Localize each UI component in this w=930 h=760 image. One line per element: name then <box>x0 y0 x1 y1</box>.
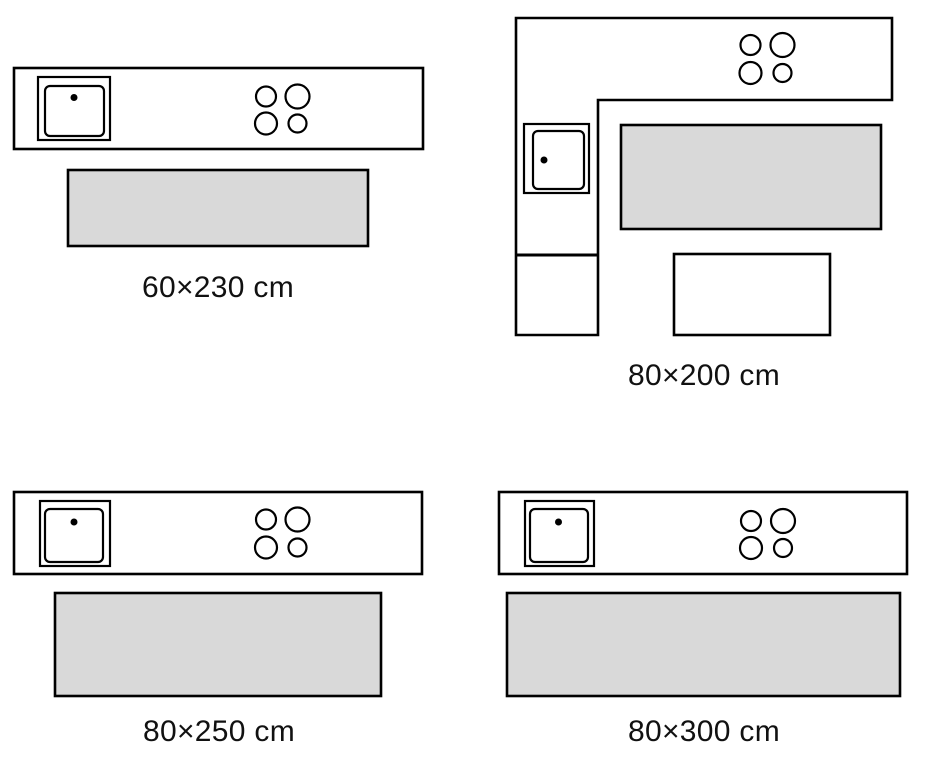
faucet-dot-icon <box>71 519 78 526</box>
faucet-dot-icon <box>71 94 78 101</box>
sink-basin <box>45 509 103 562</box>
size-label-top-right: 80×200 cm <box>554 360 854 392</box>
size-label-top-left: 60×230 cm <box>68 272 368 304</box>
sink-basin <box>530 509 588 562</box>
faucet-dot-icon <box>541 157 548 164</box>
faucet-dot-icon <box>555 519 562 526</box>
sink-basin <box>45 86 104 136</box>
table-outline <box>674 254 830 335</box>
size-label-bottom-right: 80×300 cm <box>554 716 854 748</box>
rug-size-diagram: 60×230 cm 80×200 cm 80×250 cm 80×300 cm <box>0 0 930 760</box>
panel-top-left <box>14 68 423 246</box>
rug-rect <box>507 593 900 696</box>
rug-rect <box>621 125 881 229</box>
panel-bottom-right <box>499 492 907 696</box>
size-label-bottom-left: 80×250 cm <box>69 716 369 748</box>
panel-bottom-left <box>14 492 422 696</box>
rug-rect <box>68 170 368 246</box>
rug-rect <box>55 593 381 696</box>
panel-top-right <box>516 18 892 335</box>
